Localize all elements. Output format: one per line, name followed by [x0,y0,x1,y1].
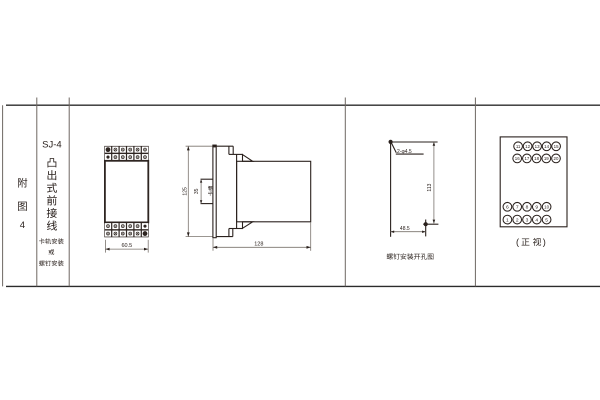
svg-text:18: 18 [534,156,539,161]
svg-text:10: 10 [544,204,549,209]
svg-text:16: 16 [515,156,520,161]
svg-text:4: 4 [535,217,538,223]
svg-text:3: 3 [526,217,529,223]
svg-text:9: 9 [535,205,538,211]
svg-text:6: 6 [506,205,509,211]
svg-text:4: 4 [20,220,25,231]
svg-text:35: 35 [194,188,200,194]
svg-text:(: ( [516,237,519,247]
svg-text:2: 2 [516,217,519,223]
svg-text:48.5: 48.5 [400,226,410,232]
svg-text:12: 12 [525,144,530,149]
svg-text:60.5: 60.5 [121,243,132,249]
svg-text:19: 19 [544,156,549,161]
svg-text:113: 113 [427,183,433,191]
svg-text:11: 11 [516,144,521,149]
svg-text:7: 7 [516,205,519,211]
svg-text:125: 125 [183,187,189,196]
svg-text:17: 17 [524,156,529,161]
svg-text:128: 128 [254,241,263,247]
svg-text:1: 1 [506,217,509,223]
svg-text:SJ-4: SJ-4 [42,139,62,150]
svg-text:2-φ4.5: 2-φ4.5 [397,149,412,155]
svg-text:13: 13 [535,144,540,149]
svg-text:14: 14 [544,144,549,149]
svg-text:5: 5 [545,217,548,223]
svg-text:8: 8 [526,205,529,211]
svg-text:): ) [543,237,546,247]
svg-text:20: 20 [554,156,559,161]
svg-text:15: 15 [554,144,559,149]
